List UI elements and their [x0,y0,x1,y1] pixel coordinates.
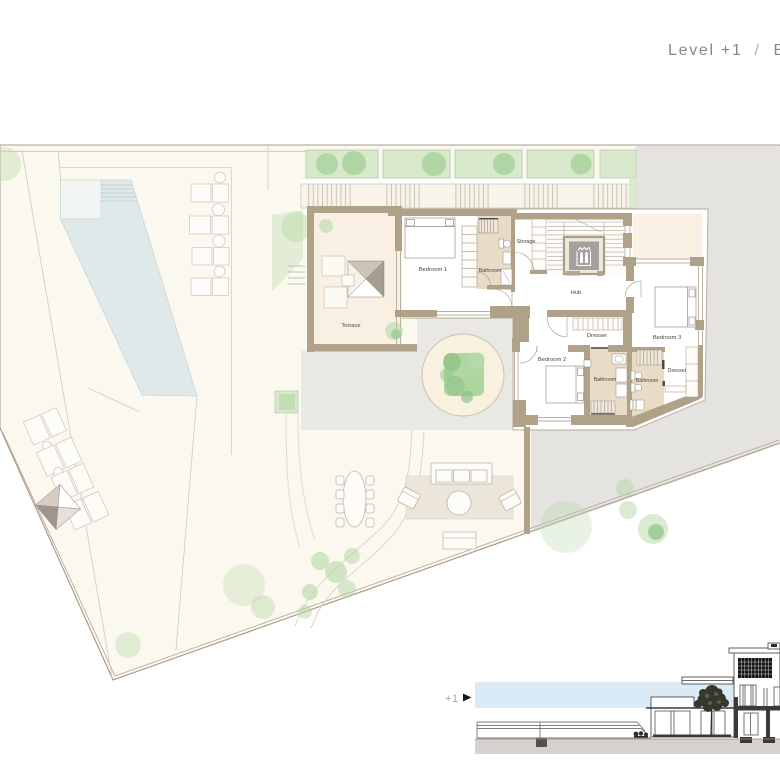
svg-text:Bathroom: Bathroom [594,377,617,383]
svg-text:Bedroom 1: Bedroom 1 [419,267,447,273]
svg-text:Storage: Storage [517,239,536,245]
svg-text:Hub: Hub [571,290,582,296]
svg-text:Dresser: Dresser [587,333,607,339]
svg-text:Bedroom 2: Bedroom 2 [538,357,566,363]
svg-text:Bedroom 3: Bedroom 3 [653,335,681,341]
svg-text:Dresser: Dresser [668,368,687,374]
svg-text:Bathroom: Bathroom [636,378,659,384]
svg-text:+1: +1 [445,693,459,705]
svg-text:Terrace: Terrace [341,323,360,329]
svg-text:Bathroom: Bathroom [479,268,502,274]
